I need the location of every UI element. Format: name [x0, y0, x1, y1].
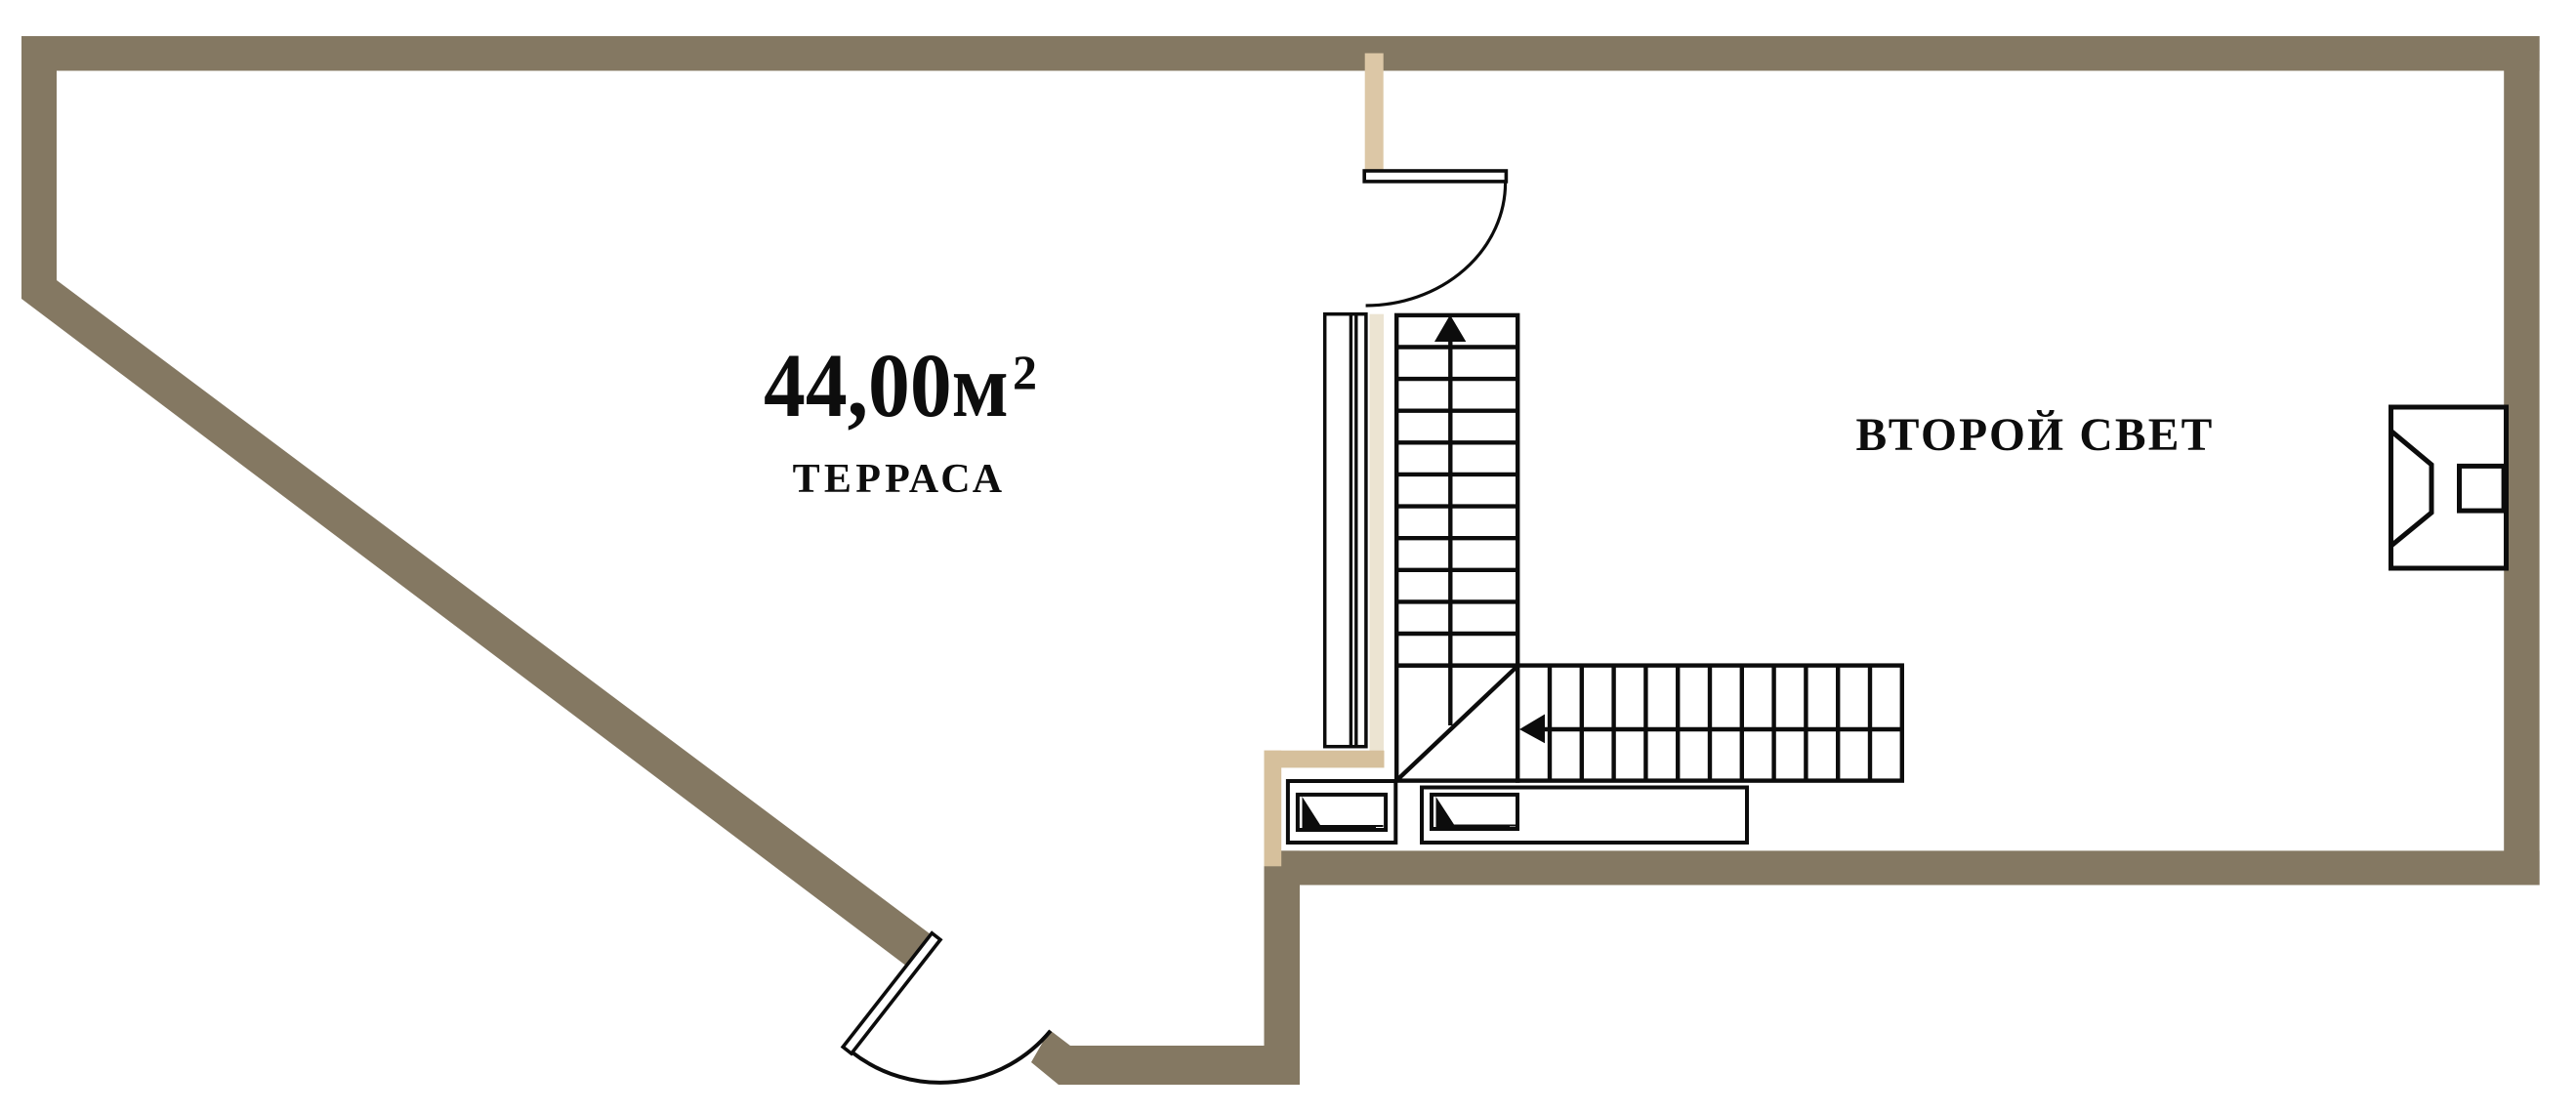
svg-text:44,00м: 44,00м	[764, 336, 1009, 436]
svg-text:2: 2	[1013, 345, 1037, 399]
svg-text:ВТОРОЙ СВЕТ: ВТОРОЙ СВЕТ	[1855, 409, 2214, 461]
svg-text:ТЕРРАСА: ТЕРРАСА	[793, 457, 1007, 502]
